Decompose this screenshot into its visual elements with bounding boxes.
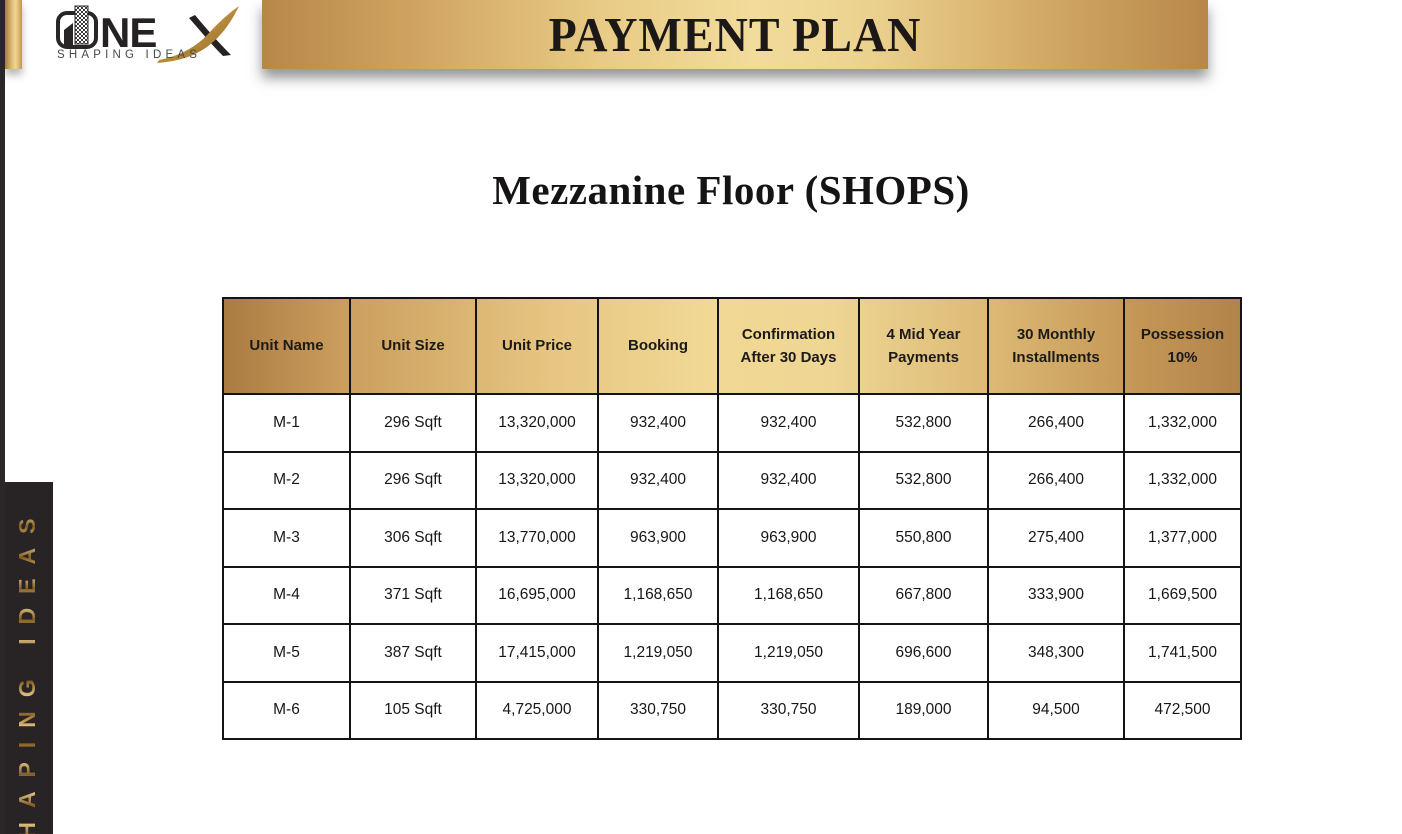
table-body: M-1296 Sqft13,320,000932,400932,400532,8… — [223, 394, 1241, 739]
column-header: Unit Price — [476, 298, 598, 394]
table-cell: 296 Sqft — [350, 394, 476, 452]
column-header: Unit Name — [223, 298, 350, 394]
table-cell: 266,400 — [988, 394, 1124, 452]
table-cell: 1,377,000 — [1124, 509, 1241, 567]
page-title: Mezzanine Floor (SHOPS) — [492, 167, 970, 213]
table-cell: 17,415,000 — [476, 624, 598, 682]
table-cell: 333,900 — [988, 567, 1124, 625]
table-cell: 330,750 — [718, 682, 859, 740]
table-cell: 532,800 — [859, 452, 988, 510]
table-cell: 348,300 — [988, 624, 1124, 682]
table-cell: 1,741,500 — [1124, 624, 1241, 682]
table-cell: 1,168,650 — [598, 567, 718, 625]
onex-logo: NE SHAPING IDEAS — [55, 5, 250, 67]
table-row: M-2296 Sqft13,320,000932,400932,400532,8… — [223, 452, 1241, 510]
logo-tagline: SHAPING IDEAS — [57, 49, 201, 61]
table-cell: 94,500 — [988, 682, 1124, 740]
table-row: M-5387 Sqft17,415,0001,219,0501,219,0506… — [223, 624, 1241, 682]
table-cell: 105 Sqft — [350, 682, 476, 740]
table-row: M-6105 Sqft4,725,000330,750330,750189,00… — [223, 682, 1241, 740]
column-header: Unit Size — [350, 298, 476, 394]
table-cell: 532,800 — [859, 394, 988, 452]
table-cell: 932,400 — [598, 452, 718, 510]
column-header: Confirmation After 30 Days — [718, 298, 859, 394]
table-cell: 296 Sqft — [350, 452, 476, 510]
table-cell: 13,320,000 — [476, 394, 598, 452]
column-header: Booking — [598, 298, 718, 394]
table-cell: 306 Sqft — [350, 509, 476, 567]
sidebar-brand-block: SHAPING IDEAS — [5, 482, 53, 834]
table-cell: 1,332,000 — [1124, 452, 1241, 510]
table-cell: 1,332,000 — [1124, 394, 1241, 452]
table-cell: 387 Sqft — [350, 624, 476, 682]
table-cell: 932,400 — [598, 394, 718, 452]
table-cell: 189,000 — [859, 682, 988, 740]
table-cell: 266,400 — [988, 452, 1124, 510]
table-cell: 275,400 — [988, 509, 1124, 567]
table-cell: 472,500 — [1124, 682, 1241, 740]
table-cell: 13,770,000 — [476, 509, 598, 567]
table-cell: 963,900 — [718, 509, 859, 567]
logo-building2-icon — [64, 23, 73, 45]
table-cell: 16,695,000 — [476, 567, 598, 625]
unit-name-cell: M-4 — [223, 567, 350, 625]
unit-name-cell: M-6 — [223, 682, 350, 740]
table-cell: 696,600 — [859, 624, 988, 682]
column-header: 30 Monthly Installments — [988, 298, 1124, 394]
table-cell: 1,219,050 — [598, 624, 718, 682]
table-header-row: Unit NameUnit SizeUnit PriceBookingConfi… — [223, 298, 1241, 394]
column-header: Possession 10% — [1124, 298, 1241, 394]
table-cell: 1,168,650 — [718, 567, 859, 625]
table-cell: 330,750 — [598, 682, 718, 740]
logo-building-icon — [75, 6, 88, 44]
table-cell: 371 Sqft — [350, 567, 476, 625]
sidebar-vertical-text: SHAPING IDEAS — [14, 505, 41, 834]
unit-name-cell: M-1 — [223, 394, 350, 452]
table-cell: 1,669,500 — [1124, 567, 1241, 625]
table-row: M-3306 Sqft13,770,000963,900963,900550,8… — [223, 509, 1241, 567]
heading-wrap: Mezzanine Floor (SHOPS) — [60, 166, 1402, 214]
table-cell: 932,400 — [718, 452, 859, 510]
payment-plan-banner: PAYMENT PLAN — [262, 0, 1208, 69]
table-cell: 13,320,000 — [476, 452, 598, 510]
table-cell: 932,400 — [718, 394, 859, 452]
table-row: M-4371 Sqft16,695,0001,168,6501,168,6506… — [223, 567, 1241, 625]
unit-name-cell: M-2 — [223, 452, 350, 510]
table-cell: 1,219,050 — [718, 624, 859, 682]
table-cell: 667,800 — [859, 567, 988, 625]
table-cell: 550,800 — [859, 509, 988, 567]
banner-title: PAYMENT PLAN — [549, 6, 922, 62]
table-cell: 963,900 — [598, 509, 718, 567]
unit-name-cell: M-3 — [223, 509, 350, 567]
gold-accent-bar — [5, 0, 22, 69]
column-header: 4 Mid Year Payments — [859, 298, 988, 394]
table-row: M-1296 Sqft13,320,000932,400932,400532,8… — [223, 394, 1241, 452]
payment-plan-table-wrap: Unit NameUnit SizeUnit PriceBookingConfi… — [222, 297, 1240, 740]
payment-plan-table: Unit NameUnit SizeUnit PriceBookingConfi… — [222, 297, 1242, 740]
payment-plan-page: NE SHAPING IDEAS PAYMENT PLAN Mezzanine … — [0, 0, 1402, 834]
table-cell: 4,725,000 — [476, 682, 598, 740]
unit-name-cell: M-5 — [223, 624, 350, 682]
